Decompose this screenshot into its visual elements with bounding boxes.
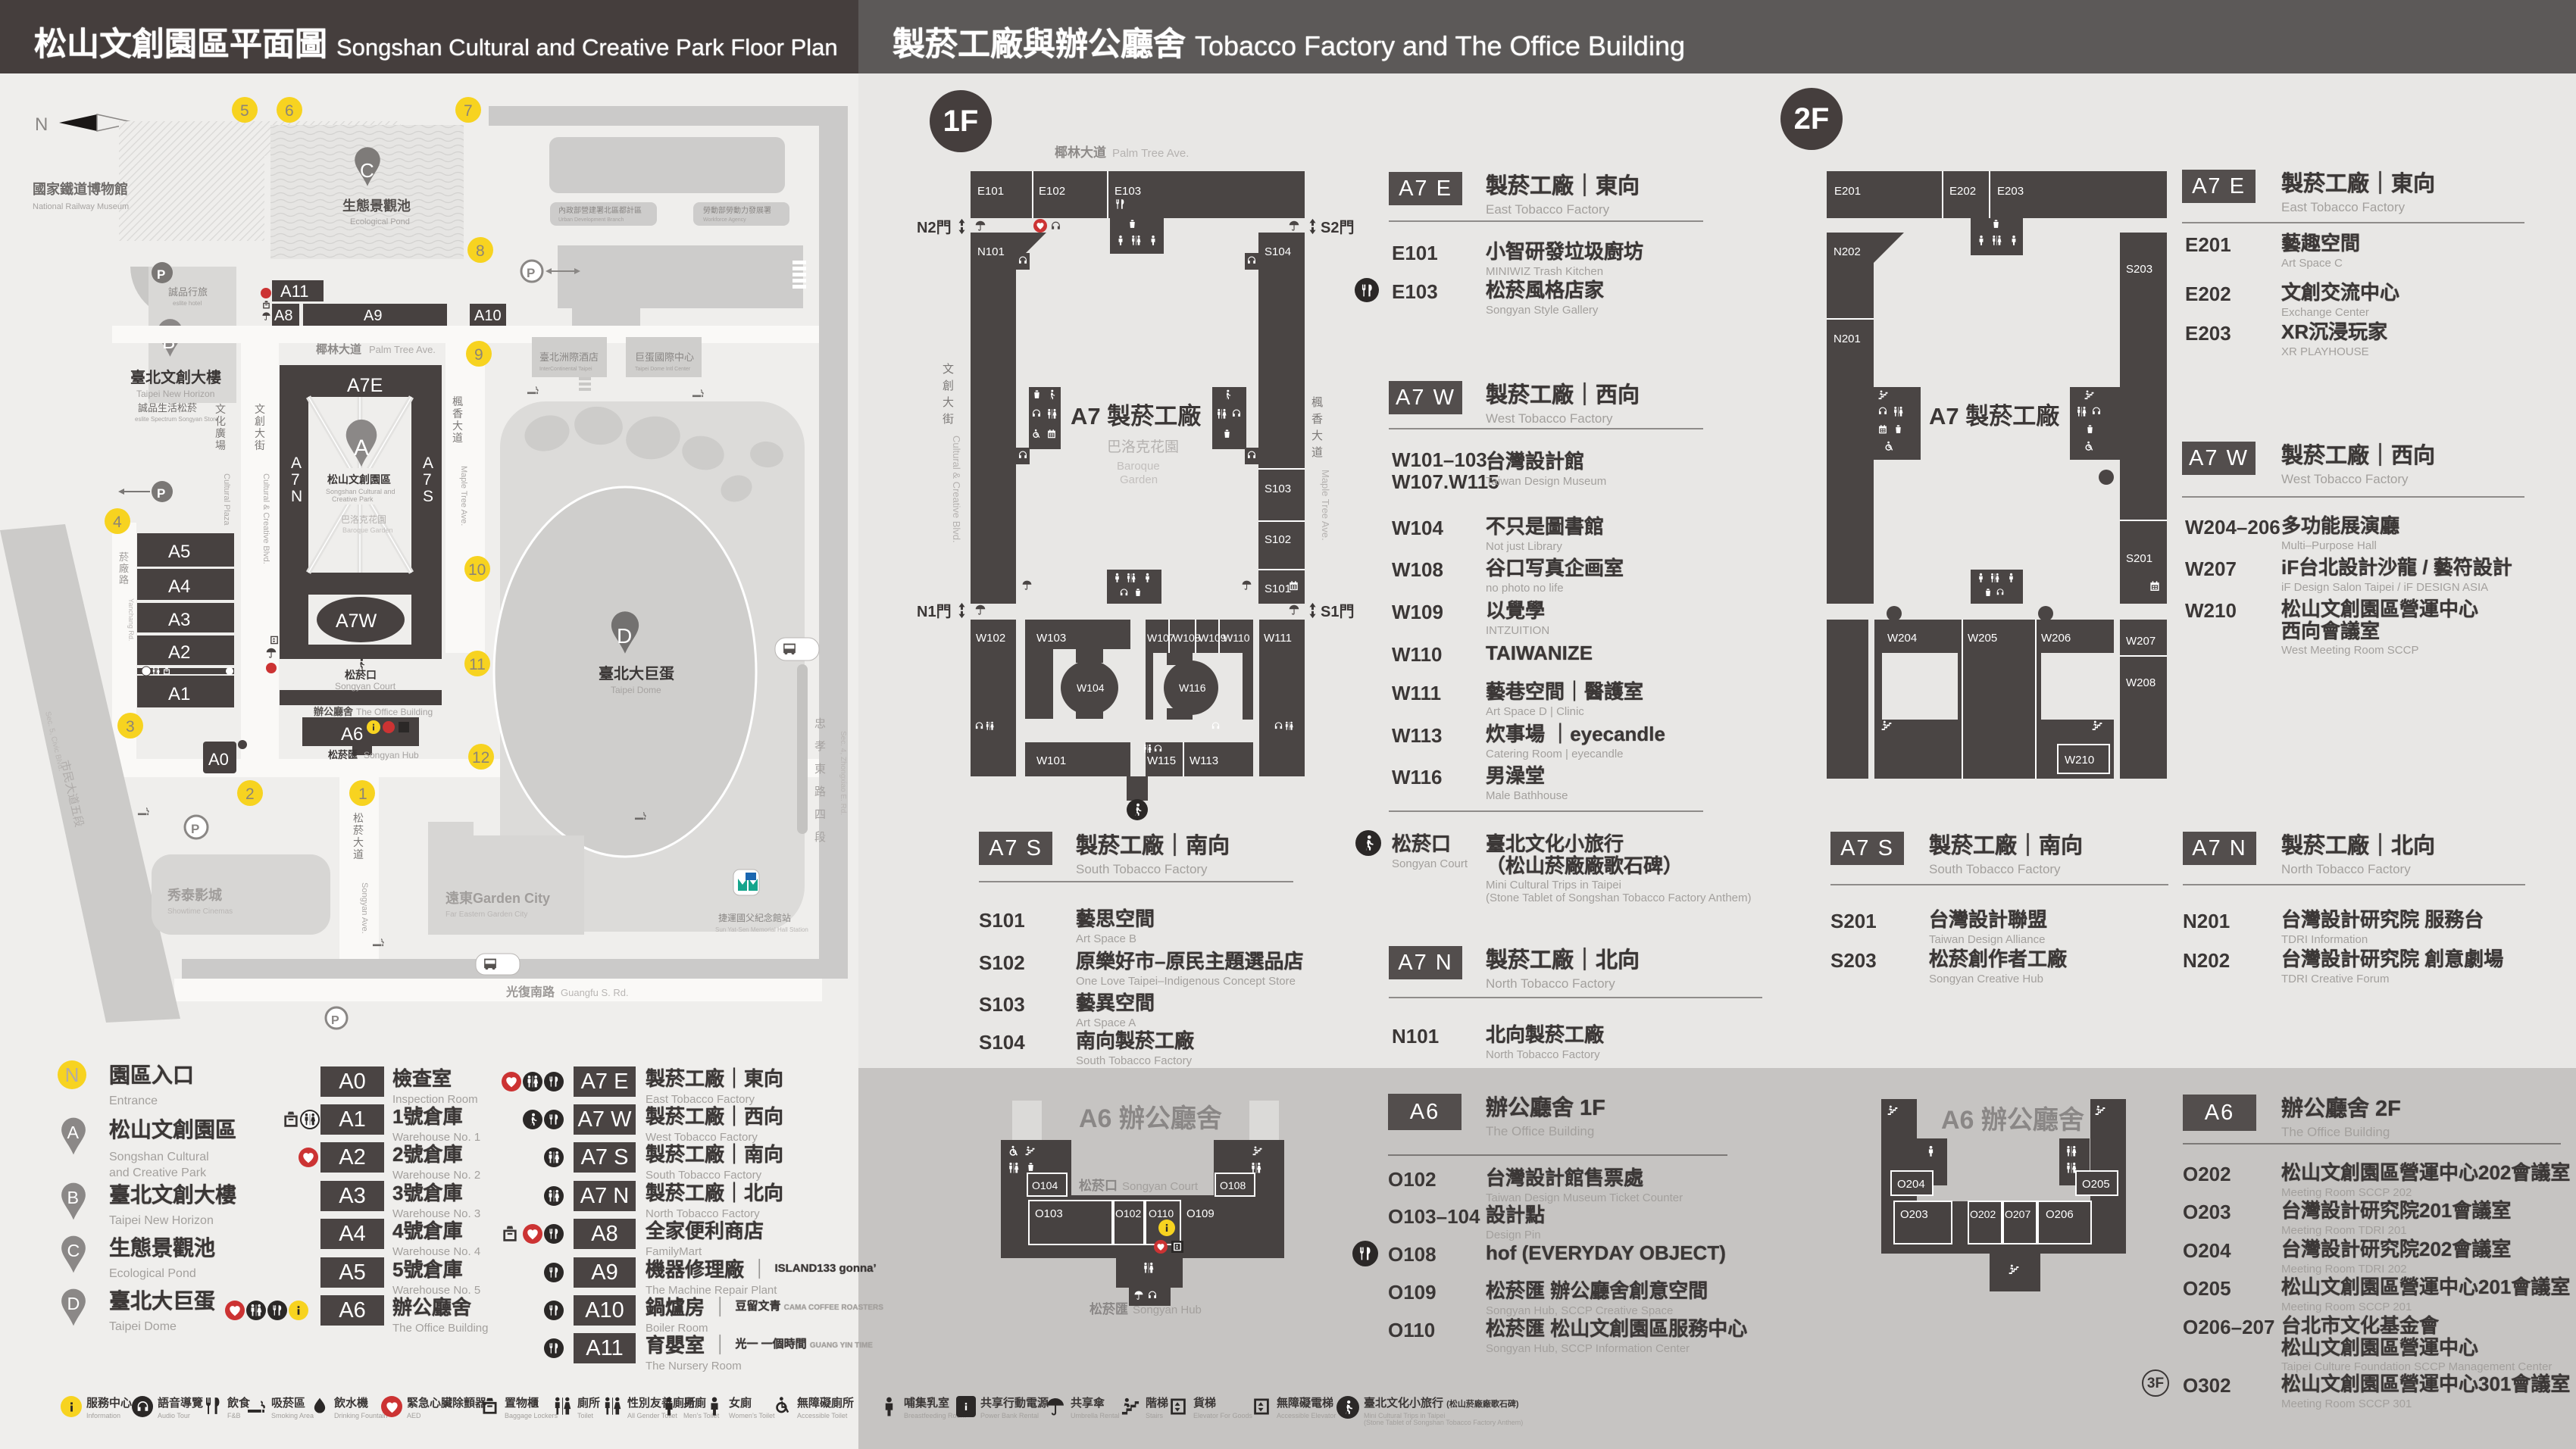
svg-text:D: D xyxy=(617,624,632,648)
svg-text:S1門: S1門 xyxy=(1321,603,1354,620)
svg-text:S103: S103 xyxy=(1265,482,1291,495)
svg-text:菸廠路: 菸廠路 xyxy=(119,551,129,586)
svg-text:生態景觀池: 生態景觀池 xyxy=(342,198,411,214)
svg-text:Maple Tree Ave.: Maple Tree Ave. xyxy=(1320,470,1331,541)
svg-text:S203: S203 xyxy=(2126,263,2152,276)
svg-text:O202: O202 xyxy=(1970,1208,1996,1220)
svg-text:S101: S101 xyxy=(1265,582,1291,595)
svg-text:B: B xyxy=(67,1188,80,1207)
svg-text:臺北洲際酒店: 臺北洲際酒店 xyxy=(539,351,599,363)
svg-text:遠東Garden City: 遠東Garden City xyxy=(445,890,550,906)
svg-text:文化廣場: 文化廣場 xyxy=(215,403,226,451)
svg-text:W110: W110 xyxy=(1223,632,1250,644)
svg-text:N201: N201 xyxy=(1834,333,1861,345)
svg-text:P: P xyxy=(157,486,165,501)
svg-text:E203: E203 xyxy=(1997,185,2024,198)
svg-text:Songshan Cultural and: Songshan Cultural and xyxy=(326,488,395,495)
svg-text:Yanchang Rd.: Yanchang Rd. xyxy=(127,598,135,641)
svg-text:內政部營建署北區都計區: 內政部營建署北區都計區 xyxy=(558,205,642,215)
svg-text:松菸匯: 松菸匯 xyxy=(1089,1301,1128,1316)
svg-text:11: 11 xyxy=(469,656,486,673)
svg-text:A6 辦公廳舍: A6 辦公廳舍 xyxy=(1079,1104,1222,1133)
svg-text:松菸口: 松菸口 xyxy=(345,669,377,681)
svg-text:Songyan Court: Songyan Court xyxy=(1122,1180,1199,1193)
svg-text:A2: A2 xyxy=(168,642,190,663)
svg-text:誠品行旅: 誠品行旅 xyxy=(168,286,208,298)
svg-text:C: C xyxy=(360,159,374,182)
svg-text:The Office Building: The Office Building xyxy=(356,707,433,717)
svg-text:楓香大道: 楓香大道 xyxy=(452,395,463,444)
svg-text:A11: A11 xyxy=(280,282,309,301)
svg-text:10: 10 xyxy=(468,561,486,579)
svg-text:7: 7 xyxy=(464,102,473,120)
svg-text:Showtime Cinemas: Showtime Cinemas xyxy=(167,907,233,916)
svg-text:Sun Yat-Sen Memorial Hall Stat: Sun Yat-Sen Memorial Hall Station xyxy=(715,926,808,933)
svg-text:Taipei Dome: Taipei Dome xyxy=(611,685,661,695)
svg-text:P: P xyxy=(191,822,199,836)
svg-text:A: A xyxy=(67,1123,80,1142)
svg-text:9: 9 xyxy=(474,346,483,364)
svg-text:辦公廳舍: 辦公廳舍 xyxy=(314,706,354,717)
svg-text:勞動部勞動力發展署: 勞動部勞動力發展署 xyxy=(703,205,771,215)
svg-text:O203: O203 xyxy=(1900,1208,1928,1221)
svg-text:E102: E102 xyxy=(1039,185,1065,198)
svg-text:臺北文創大樓: 臺北文創大樓 xyxy=(130,368,221,386)
svg-text:W210: W210 xyxy=(2065,754,2094,767)
svg-text:P: P xyxy=(527,266,535,280)
svg-text:國家鐵道博物館: 國家鐵道博物館 xyxy=(33,181,128,197)
svg-text:A0: A0 xyxy=(208,750,229,769)
svg-text:S104: S104 xyxy=(1265,245,1291,258)
svg-text:Palm Tree Ave.: Palm Tree Ave. xyxy=(1112,147,1189,160)
svg-text:文創大街: 文創大街 xyxy=(943,363,954,426)
svg-text:A5: A5 xyxy=(168,542,190,562)
svg-text:Cultural & Creative Blvd.: Cultural & Creative Blvd. xyxy=(951,436,962,543)
svg-text:A7E: A7E xyxy=(347,375,383,396)
svg-text:A10: A10 xyxy=(474,308,502,324)
svg-text:N: N xyxy=(35,114,48,135)
svg-text:2: 2 xyxy=(245,785,255,803)
svg-text:O109: O109 xyxy=(1186,1207,1215,1220)
svg-text:Palm Tree Ave.: Palm Tree Ave. xyxy=(369,344,436,355)
svg-text:A9: A9 xyxy=(364,308,382,324)
svg-text:松菸大道: 松菸大道 xyxy=(353,812,364,860)
svg-text:Cultural & Creative Blvd.: Cultural & Creative Blvd. xyxy=(261,473,270,564)
svg-text:O207: O207 xyxy=(2005,1208,2030,1220)
svg-text:O205: O205 xyxy=(2082,1178,2110,1191)
svg-text:E101: E101 xyxy=(977,185,1004,198)
svg-text:W208: W208 xyxy=(2126,676,2156,689)
svg-text:Ecological Pond: Ecological Pond xyxy=(350,217,410,226)
svg-text:P: P xyxy=(331,1014,339,1027)
svg-text:C: C xyxy=(67,1241,80,1260)
svg-text:Songyan Hub: Songyan Hub xyxy=(1133,1304,1202,1316)
svg-text:捷運國父紀念館站: 捷運國父紀念館站 xyxy=(718,912,791,923)
svg-text:秀泰影城: 秀泰影城 xyxy=(167,887,222,903)
svg-text:巴洛克花園: 巴洛克花園 xyxy=(341,514,386,525)
svg-text:文創大街: 文創大街 xyxy=(255,403,265,451)
svg-text:W116: W116 xyxy=(1179,682,1206,694)
svg-text:O110: O110 xyxy=(1149,1207,1174,1219)
svg-text:Garden: Garden xyxy=(1120,473,1158,486)
svg-text:A3: A3 xyxy=(168,610,190,630)
svg-text:E201: E201 xyxy=(1834,185,1861,198)
svg-text:Taipei New Horizon: Taipei New Horizon xyxy=(136,389,214,399)
svg-text:誠品生活松菸: 誠品生活松菸 xyxy=(138,402,197,414)
svg-text:O206: O206 xyxy=(2046,1208,2074,1221)
svg-text:Workforce Agency: Workforce Agency xyxy=(703,217,746,223)
svg-text:N101: N101 xyxy=(977,245,1005,258)
svg-text:A7 製菸工廠: A7 製菸工廠 xyxy=(1929,403,2059,429)
svg-text:W107: W107 xyxy=(1147,632,1175,644)
svg-text:1: 1 xyxy=(358,785,367,803)
svg-text:eslite hotel: eslite hotel xyxy=(173,300,202,307)
svg-text:P: P xyxy=(157,267,165,282)
svg-text:W104: W104 xyxy=(1077,682,1105,694)
svg-text:8: 8 xyxy=(476,242,485,260)
svg-text:S2門: S2門 xyxy=(1321,219,1354,236)
svg-text:楓香大道: 楓香大道 xyxy=(1311,396,1323,459)
svg-text:Songyan Hub: Songyan Hub xyxy=(364,750,419,760)
svg-text:N2門: N2門 xyxy=(917,219,952,236)
svg-text:A7W: A7W xyxy=(336,611,377,632)
svg-text:Cultural Plaza: Cultural Plaza xyxy=(222,473,231,526)
svg-text:臺北大巨蛋: 臺北大巨蛋 xyxy=(599,665,674,682)
svg-text:S201: S201 xyxy=(2126,552,2152,565)
svg-text:12: 12 xyxy=(472,749,489,767)
svg-text:D: D xyxy=(67,1294,80,1313)
svg-text:A1: A1 xyxy=(168,684,190,704)
svg-text:W111: W111 xyxy=(1264,632,1292,645)
svg-text:巴洛克花園: 巴洛克花園 xyxy=(1107,439,1179,455)
svg-text:W108: W108 xyxy=(1173,632,1201,644)
svg-text:A8: A8 xyxy=(274,308,292,324)
svg-text:Far Eastern Garden City: Far Eastern Garden City xyxy=(445,910,527,919)
svg-text:InterContinental Taipei: InterContinental Taipei xyxy=(539,367,592,372)
svg-text:Songyan Court: Songyan Court xyxy=(335,681,396,692)
svg-text:W204: W204 xyxy=(1887,632,1917,645)
svg-text:O103: O103 xyxy=(1035,1207,1063,1220)
svg-text:Baroque: Baroque xyxy=(1117,460,1160,473)
svg-text:A4: A4 xyxy=(168,576,190,597)
svg-text:A: A xyxy=(354,436,369,461)
svg-text:松菸匯: 松菸匯 xyxy=(328,749,358,760)
svg-text:Maple Tree Ave.: Maple Tree Ave. xyxy=(459,466,468,526)
svg-text:巨蛋國際中心: 巨蛋國際中心 xyxy=(635,351,694,363)
svg-text:eslite Spectrum Songyan Store: eslite Spectrum Songyan Store xyxy=(135,416,219,423)
svg-text:A7 製菸工廠: A7 製菸工廠 xyxy=(1071,403,1201,429)
svg-text:N202: N202 xyxy=(1834,245,1861,258)
svg-text:O102: O102 xyxy=(1115,1207,1141,1219)
svg-text:Taipei Dome Intl Center: Taipei Dome Intl Center xyxy=(635,367,691,372)
svg-text:O204: O204 xyxy=(1897,1178,1925,1191)
svg-text:4: 4 xyxy=(113,514,122,531)
svg-text:W205: W205 xyxy=(1968,632,1997,645)
svg-text:Creative Park: Creative Park xyxy=(332,495,374,503)
svg-text:A6 辦公廳舍: A6 辦公廳舍 xyxy=(1941,1105,2084,1135)
svg-text:E202: E202 xyxy=(1949,185,1976,198)
svg-text:Songyan Ave.: Songyan Ave. xyxy=(360,882,369,934)
svg-text:6: 6 xyxy=(285,102,294,120)
svg-text:National Railway Museum: National Railway Museum xyxy=(33,202,129,211)
svg-text:O104: O104 xyxy=(1032,1179,1058,1191)
svg-text:Guangfu S. Rd.: Guangfu S. Rd. xyxy=(561,987,629,998)
svg-text:松山文創園區: 松山文創園區 xyxy=(327,473,391,486)
svg-text:松菸口: 松菸口 xyxy=(1079,1178,1118,1193)
svg-text:W101: W101 xyxy=(1036,754,1066,767)
svg-text:E103: E103 xyxy=(1114,185,1141,198)
svg-text:光復南路: 光復南路 xyxy=(505,985,555,999)
svg-text:W103: W103 xyxy=(1036,632,1066,645)
svg-text:S102: S102 xyxy=(1265,533,1291,546)
svg-text:W115: W115 xyxy=(1147,754,1176,767)
svg-text:椰林大道: 椰林大道 xyxy=(1055,145,1106,160)
svg-text:Urban Development Branch: Urban Development Branch xyxy=(558,217,624,223)
svg-text:Sec. 4, Zhongxiao E. Rd.: Sec. 4, Zhongxiao E. Rd. xyxy=(839,731,847,815)
svg-text:椰林大道: 椰林大道 xyxy=(316,342,361,356)
svg-text:3: 3 xyxy=(126,718,135,735)
svg-text:W207: W207 xyxy=(2126,635,2156,648)
svg-text:5: 5 xyxy=(240,102,249,120)
svg-text:A6: A6 xyxy=(341,724,363,745)
svg-text:W206: W206 xyxy=(2041,632,2071,645)
svg-text:W102: W102 xyxy=(976,632,1005,645)
svg-text:O108: O108 xyxy=(1220,1179,1246,1191)
svg-text:N1門: N1門 xyxy=(917,603,952,620)
svg-text:Baroque Garden: Baroque Garden xyxy=(342,526,393,534)
svg-text:W113: W113 xyxy=(1190,754,1218,767)
